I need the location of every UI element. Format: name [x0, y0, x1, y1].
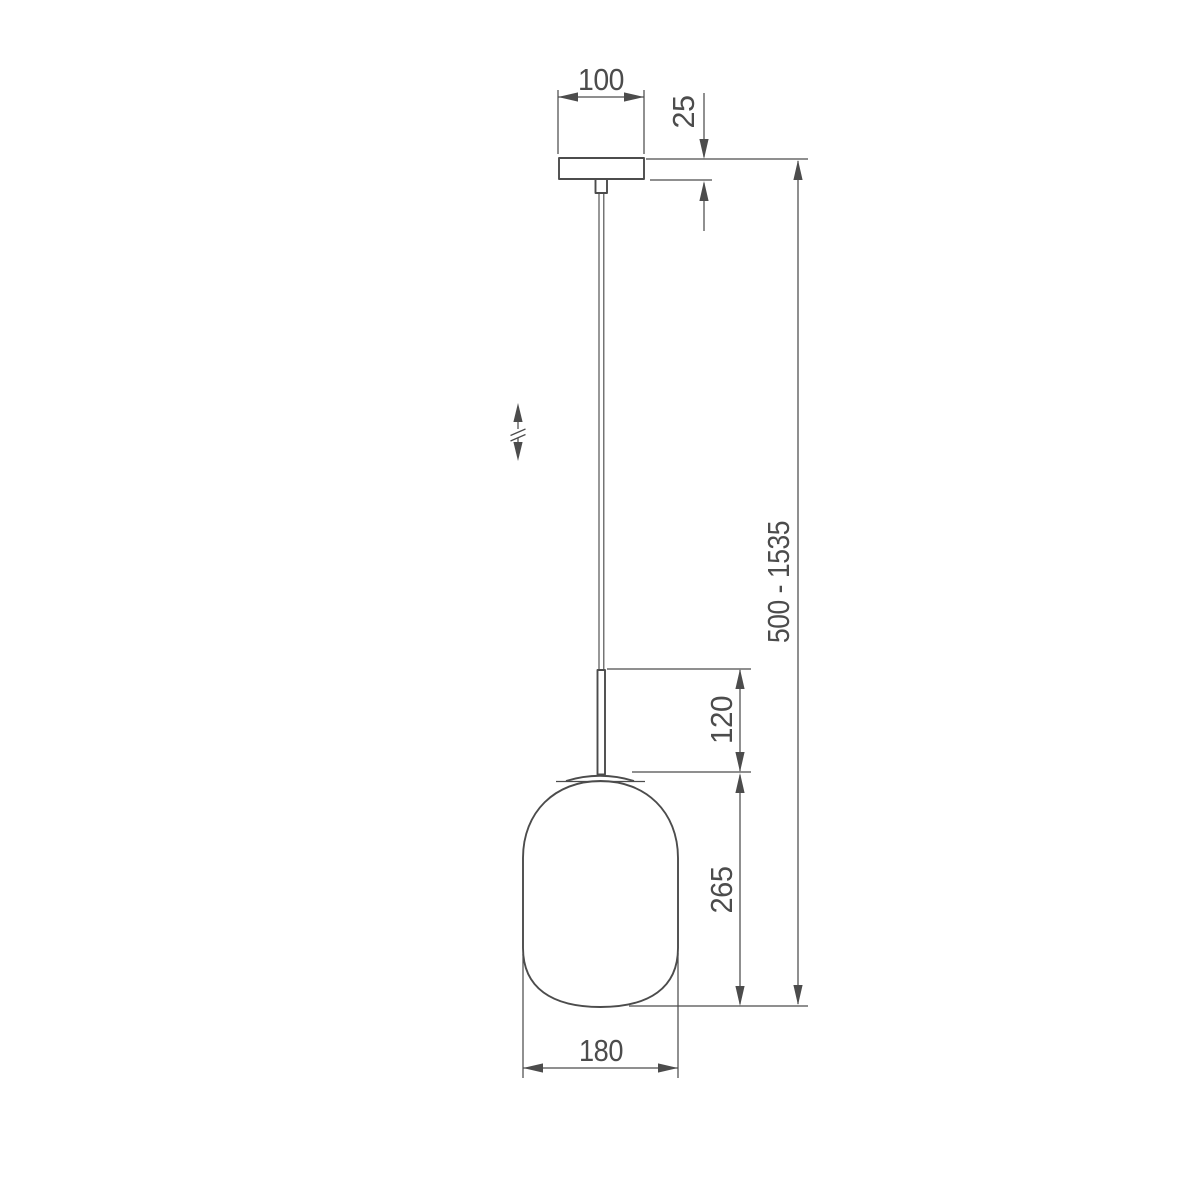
- overall-height-label: 500 - 1535: [761, 521, 796, 643]
- arrowhead-right-icon: [658, 1063, 678, 1072]
- dim-shade-width: 180: [523, 953, 678, 1078]
- arrowhead-left-icon: [523, 1063, 543, 1072]
- shade-height-label: 265: [704, 867, 739, 914]
- dim-canopy-width: 100: [558, 62, 644, 154]
- canopy-height-label: 25: [666, 96, 701, 129]
- arrowhead-up-icon: [793, 160, 802, 180]
- arrowhead-left-icon: [558, 92, 578, 101]
- drawing-canvas: 100 25 500 - 1535 120: [0, 0, 1200, 1200]
- adjust-arrow-up-icon: [513, 403, 522, 422]
- stem: [598, 670, 606, 775]
- arrowhead-down-icon: [735, 752, 744, 772]
- dim-canopy-height: 25: [650, 93, 712, 231]
- adjust-arrow-down-icon: [513, 442, 522, 461]
- ceiling-canopy: [559, 158, 644, 179]
- canopy-width-label: 100: [578, 62, 624, 97]
- arrowhead-up-icon: [735, 669, 744, 689]
- dim-stem-length: 120: [607, 669, 751, 772]
- adjustability-symbol: [511, 403, 526, 461]
- shade-width-label: 180: [579, 1033, 623, 1068]
- dim-shade-height: 265: [704, 773, 745, 1006]
- arrowhead-up-icon: [735, 773, 744, 793]
- shade-outline: [523, 781, 678, 1007]
- arrowhead-right-icon: [624, 92, 644, 101]
- arrowhead-down-icon: [699, 139, 708, 159]
- stem-length-label: 120: [704, 696, 739, 744]
- cable-connector: [596, 179, 608, 193]
- adjust-break-slash-1: [511, 429, 526, 436]
- fixture: [523, 158, 678, 1007]
- arrowhead-down-icon: [735, 986, 744, 1006]
- arrowhead-down-icon: [793, 985, 802, 1005]
- pendant-lamp-dimension-drawing: 100 25 500 - 1535 120: [0, 0, 1200, 1200]
